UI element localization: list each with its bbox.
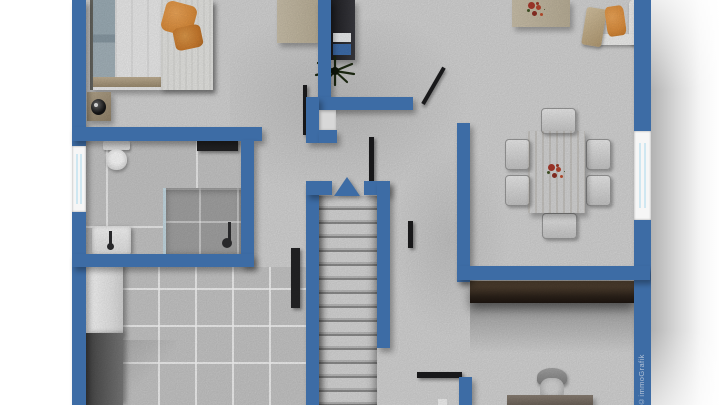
- shelf: [331, 0, 355, 60]
- wall-south-rooms: [457, 266, 650, 280]
- dining-chair: [505, 175, 530, 206]
- door-sill: [438, 399, 447, 405]
- wall-bedroom-south: [72, 127, 262, 141]
- page-edge-fade-top: [651, 0, 720, 90]
- door-leaf: [408, 221, 413, 248]
- tall-cabinet: [291, 248, 300, 308]
- wall-bathroom-east: [241, 140, 254, 266]
- window-right: [634, 131, 651, 220]
- door-leaf: [369, 137, 374, 182]
- wall-stair-east: [377, 181, 390, 348]
- shelf-item: [333, 44, 351, 55]
- floor-plan: ©immoGrafik: [0, 0, 720, 405]
- wall-hall-north: [318, 97, 413, 110]
- toilet-bowl: [106, 149, 127, 170]
- staircase: [319, 196, 377, 405]
- watermark-text: ©immoGrafik: [637, 334, 650, 405]
- wall-bathroom-south: [72, 254, 254, 267]
- flower-bouquet-icon: [528, 2, 535, 9]
- faucet-handle-icon: [107, 243, 114, 250]
- sideboard: [470, 281, 634, 303]
- bed-mattress: [115, 0, 161, 77]
- table-lamp-icon: [91, 99, 106, 115]
- dining-chair: [586, 139, 611, 170]
- dining-chair: [586, 175, 611, 206]
- threshold-bar: [417, 372, 462, 378]
- bed-frame: [93, 77, 161, 87]
- flower-centerpiece-icon: [548, 164, 555, 171]
- dining-chair: [505, 139, 530, 170]
- wall-dining-west: [457, 123, 470, 282]
- window-left: [72, 146, 86, 212]
- shower-glass-panel: [163, 188, 166, 254]
- wall-entry-south: [459, 377, 472, 405]
- wall-hall-corner: [306, 97, 319, 143]
- office-desk: [507, 395, 593, 405]
- wall-niche: [319, 110, 336, 130]
- dining-table: [528, 131, 585, 213]
- shelf-item: [333, 33, 351, 42]
- corner-sofa: [584, 0, 641, 48]
- page-edge-fade-bottom: [651, 330, 720, 405]
- kitchen-counter: [86, 333, 123, 405]
- bed-pillows: [93, 0, 115, 77]
- coffee-table: [512, 0, 570, 27]
- dining-chair: [542, 213, 577, 239]
- orange-pillow-icon: [604, 5, 627, 37]
- north-arrow-icon: [334, 177, 360, 196]
- wall-bedroom-east: [318, 0, 331, 110]
- wall-stair-north-left: [306, 181, 332, 195]
- kitchen-appliance: [86, 262, 123, 333]
- wall-hall-stub: [319, 130, 337, 143]
- wall-stair-west: [306, 181, 319, 405]
- shower-head-icon: [222, 238, 232, 248]
- bedroom-desk: [277, 0, 318, 43]
